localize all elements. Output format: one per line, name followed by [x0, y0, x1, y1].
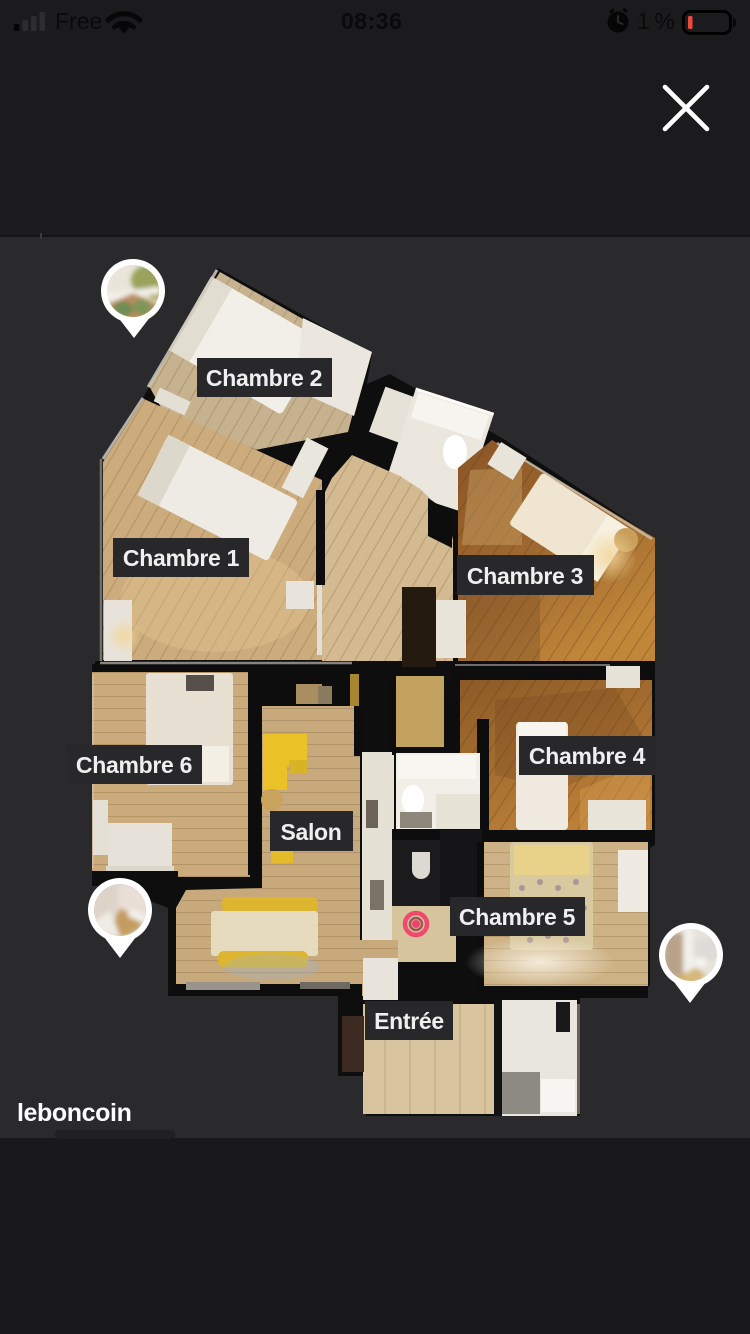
svg-text:Entrée: Entrée — [374, 1008, 444, 1034]
svg-text:Chambre 4: Chambre 4 — [529, 743, 646, 769]
svg-text:Chambre 1: Chambre 1 — [123, 545, 240, 571]
svg-text:Chambre 6: Chambre 6 — [76, 752, 192, 778]
svg-text:Salon: Salon — [280, 819, 341, 845]
svg-text:Chambre 3: Chambre 3 — [467, 563, 583, 589]
svg-text:Chambre 5: Chambre 5 — [459, 904, 576, 930]
svg-text:Chambre 2: Chambre 2 — [206, 365, 322, 391]
